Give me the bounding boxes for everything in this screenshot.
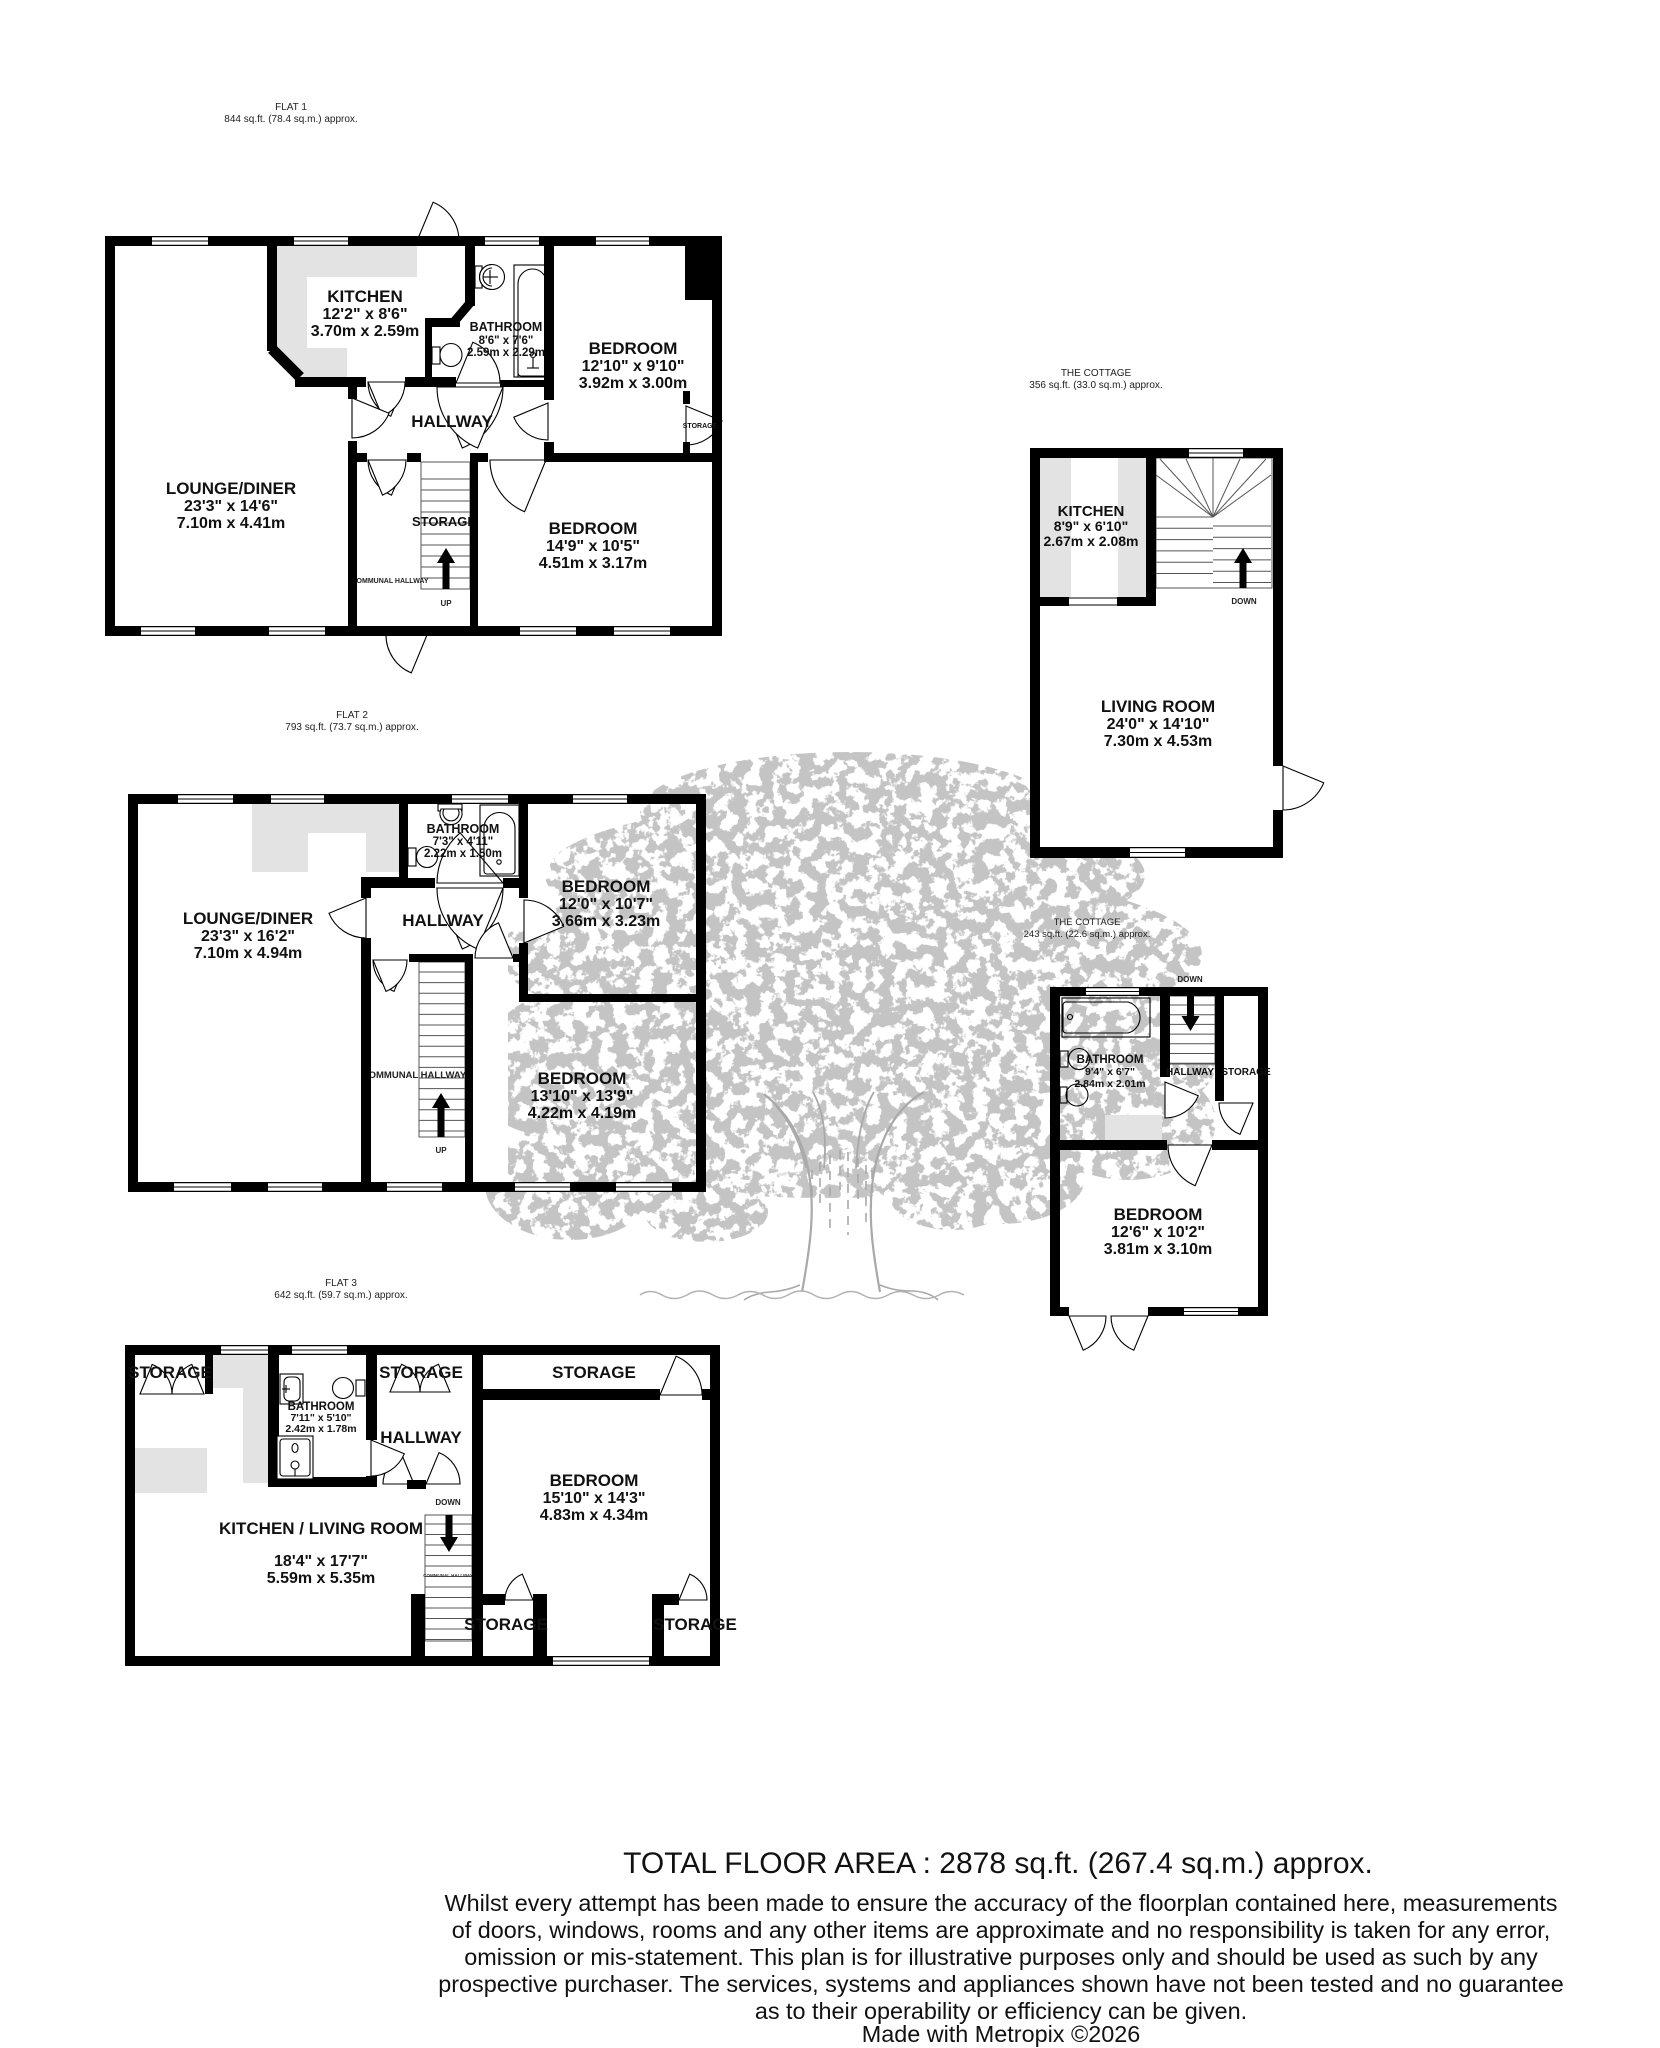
svg-text:Whilst every attempt has been: Whilst every attempt has been made to en… xyxy=(445,1890,1558,1916)
svg-text:4.83m x 4.34m: 4.83m x 4.34m xyxy=(540,1507,649,1524)
svg-text:4.22m x 4.19m: 4.22m x 4.19m xyxy=(528,1105,637,1122)
svg-text:12'2" x 8'6": 12'2" x 8'6" xyxy=(322,306,407,323)
svg-text:7.10m x 4.41m: 7.10m x 4.41m xyxy=(177,515,286,532)
svg-text:prospective purchaser. The ser: prospective purchaser. The services, sys… xyxy=(438,1971,1564,1997)
svg-text:2.67m x 2.08m: 2.67m x 2.08m xyxy=(1044,533,1139,549)
svg-text:BEDROOM: BEDROOM xyxy=(549,519,638,538)
svg-text:DOWN: DOWN xyxy=(435,1498,461,1507)
svg-text:9'4" x 6'7": 9'4" x 6'7" xyxy=(1085,1066,1135,1078)
svg-text:BEDROOM: BEDROOM xyxy=(538,1069,627,1088)
svg-text:LIVING ROOM: LIVING ROOM xyxy=(1101,697,1215,716)
svg-text:BEDROOM: BEDROOM xyxy=(562,877,651,896)
svg-text:COMMUNAL HALLWAY: COMMUNAL HALLWAY xyxy=(362,1070,467,1081)
svg-text:24'0" x 14'10": 24'0" x 14'10" xyxy=(1107,716,1210,733)
svg-text:BATHROOM: BATHROOM xyxy=(1077,1054,1144,1066)
svg-text:2.84m x 2.01m: 2.84m x 2.01m xyxy=(1074,1078,1145,1090)
svg-text:BEDROOM: BEDROOM xyxy=(550,1471,639,1490)
svg-text:BATHROOM: BATHROOM xyxy=(427,822,500,836)
svg-text:STORAGE: STORAGE xyxy=(412,514,476,529)
svg-text:HALLWAY: HALLWAY xyxy=(380,1428,462,1447)
svg-text:2.22m x 1.50m: 2.22m x 1.50m xyxy=(424,848,502,860)
svg-text:13'10" x 13'9": 13'10" x 13'9" xyxy=(531,1088,634,1105)
svg-text:FLAT 3: FLAT 3 xyxy=(325,1278,357,1289)
svg-text:LOUNGE/DINER: LOUNGE/DINER xyxy=(183,909,313,928)
svg-text:STORAGE: STORAGE xyxy=(683,423,718,430)
svg-text:UP: UP xyxy=(440,599,452,608)
svg-text:7.10m x 4.94m: 7.10m x 4.94m xyxy=(194,945,303,962)
svg-text:5.59m x 5.35m: 5.59m x 5.35m xyxy=(267,1570,376,1587)
svg-text:DOWN: DOWN xyxy=(1231,597,1257,606)
svg-text:3.70m x 2.59m: 3.70m x 2.59m xyxy=(311,323,420,340)
svg-text:TOTAL FLOOR AREA : 2878 sq.ft.: TOTAL FLOOR AREA : 2878 sq.ft. (267.4 sq… xyxy=(623,1847,1373,1880)
svg-text:Made with Metropix ©2026: Made with Metropix ©2026 xyxy=(862,2021,1141,2047)
svg-text:12'6" x 10'2": 12'6" x 10'2" xyxy=(1111,1224,1205,1241)
svg-text:15'10" x 14'3": 15'10" x 14'3" xyxy=(543,1490,646,1507)
svg-text:7.30m x 4.53m: 7.30m x 4.53m xyxy=(1104,733,1213,750)
svg-text:BEDROOM: BEDROOM xyxy=(589,339,678,358)
svg-text:2.42m x 1.78m: 2.42m x 1.78m xyxy=(285,1423,356,1435)
svg-text:3.92m x 3.00m: 3.92m x 3.00m xyxy=(579,375,688,392)
svg-text:STORAGE: STORAGE xyxy=(653,1615,737,1634)
svg-text:8'9" x 6'10": 8'9" x 6'10" xyxy=(1054,518,1128,534)
svg-text:BATHROOM: BATHROOM xyxy=(470,320,543,334)
svg-text:3.66m x 3.23m: 3.66m x 3.23m xyxy=(552,913,661,930)
svg-text:3.81m x 3.10m: 3.81m x 3.10m xyxy=(1104,1241,1213,1258)
svg-text:HALLWAY: HALLWAY xyxy=(1166,1067,1214,1078)
svg-text:THE COTTAGE: THE COTTAGE xyxy=(1054,917,1121,928)
svg-text:793 sq.ft. (73.7 sq.m.) approx: 793 sq.ft. (73.7 sq.m.) approx. xyxy=(285,722,418,733)
svg-text:THE COTTAGE: THE COTTAGE xyxy=(1061,368,1132,379)
svg-text:844 sq.ft. (78.4 sq.m.) approx: 844 sq.ft. (78.4 sq.m.) approx. xyxy=(224,114,357,125)
svg-text:STORAGE: STORAGE xyxy=(128,1363,212,1382)
svg-text:BEDROOM: BEDROOM xyxy=(1114,1205,1203,1224)
svg-text:4.51m x 3.17m: 4.51m x 3.17m xyxy=(539,555,648,572)
svg-text:STORAGE: STORAGE xyxy=(1221,1067,1271,1078)
svg-text:642 sq.ft. (59.7 sq.m.) approx: 642 sq.ft. (59.7 sq.m.) approx. xyxy=(274,1290,407,1301)
svg-text:8'6" x 7'6": 8'6" x 7'6" xyxy=(479,335,534,347)
svg-text:COMMUNAL HALLWAY: COMMUNAL HALLWAY xyxy=(352,578,429,585)
svg-text:356 sq.ft. (33.0 sq.m.) approx: 356 sq.ft. (33.0 sq.m.) approx. xyxy=(1029,380,1162,391)
svg-text:of doors, windows, rooms and a: of doors, windows, rooms and any other i… xyxy=(452,1917,1551,1943)
svg-text:23'3" x 16'2": 23'3" x 16'2" xyxy=(201,928,295,945)
svg-text:COMMUNAL HALLWAY: COMMUNAL HALLWAY xyxy=(423,1573,473,1578)
svg-text:243 sq.ft. (22.6 sq.m.) approx: 243 sq.ft. (22.6 sq.m.) approx. xyxy=(1024,929,1151,940)
svg-text:STORAGE: STORAGE xyxy=(464,1615,548,1634)
svg-text:LOUNGE/DINER: LOUNGE/DINER xyxy=(166,479,296,498)
svg-text:7'3" x 4'11": 7'3" x 4'11" xyxy=(433,836,494,848)
svg-text:HALLWAY: HALLWAY xyxy=(402,911,484,930)
svg-text:KITCHEN: KITCHEN xyxy=(327,287,403,306)
svg-text:HALLWAY: HALLWAY xyxy=(411,412,493,431)
svg-text:STORAGE: STORAGE xyxy=(379,1363,463,1382)
svg-text:STORAGE: STORAGE xyxy=(552,1363,636,1382)
svg-text:UP: UP xyxy=(435,1146,447,1155)
svg-text:omission or mis-statement. Thi: omission or mis-statement. This plan is … xyxy=(464,1944,1538,1970)
svg-text:23'3" x 14'6": 23'3" x 14'6" xyxy=(184,498,278,515)
svg-text:18'4" x 17'7": 18'4" x 17'7" xyxy=(274,1553,368,1570)
svg-text:KITCHEN / LIVING ROOM: KITCHEN / LIVING ROOM xyxy=(219,1519,423,1538)
svg-text:FLAT 2: FLAT 2 xyxy=(336,710,368,721)
svg-text:FLAT 1: FLAT 1 xyxy=(275,102,307,113)
svg-text:12'0" x 10'7": 12'0" x 10'7" xyxy=(559,896,653,913)
svg-text:14'9" x 10'5": 14'9" x 10'5" xyxy=(546,538,640,555)
svg-text:12'10" x 9'10": 12'10" x 9'10" xyxy=(582,358,685,375)
svg-text:2.59m x 2.29m: 2.59m x 2.29m xyxy=(467,347,545,359)
svg-text:DOWN: DOWN xyxy=(1177,975,1203,984)
